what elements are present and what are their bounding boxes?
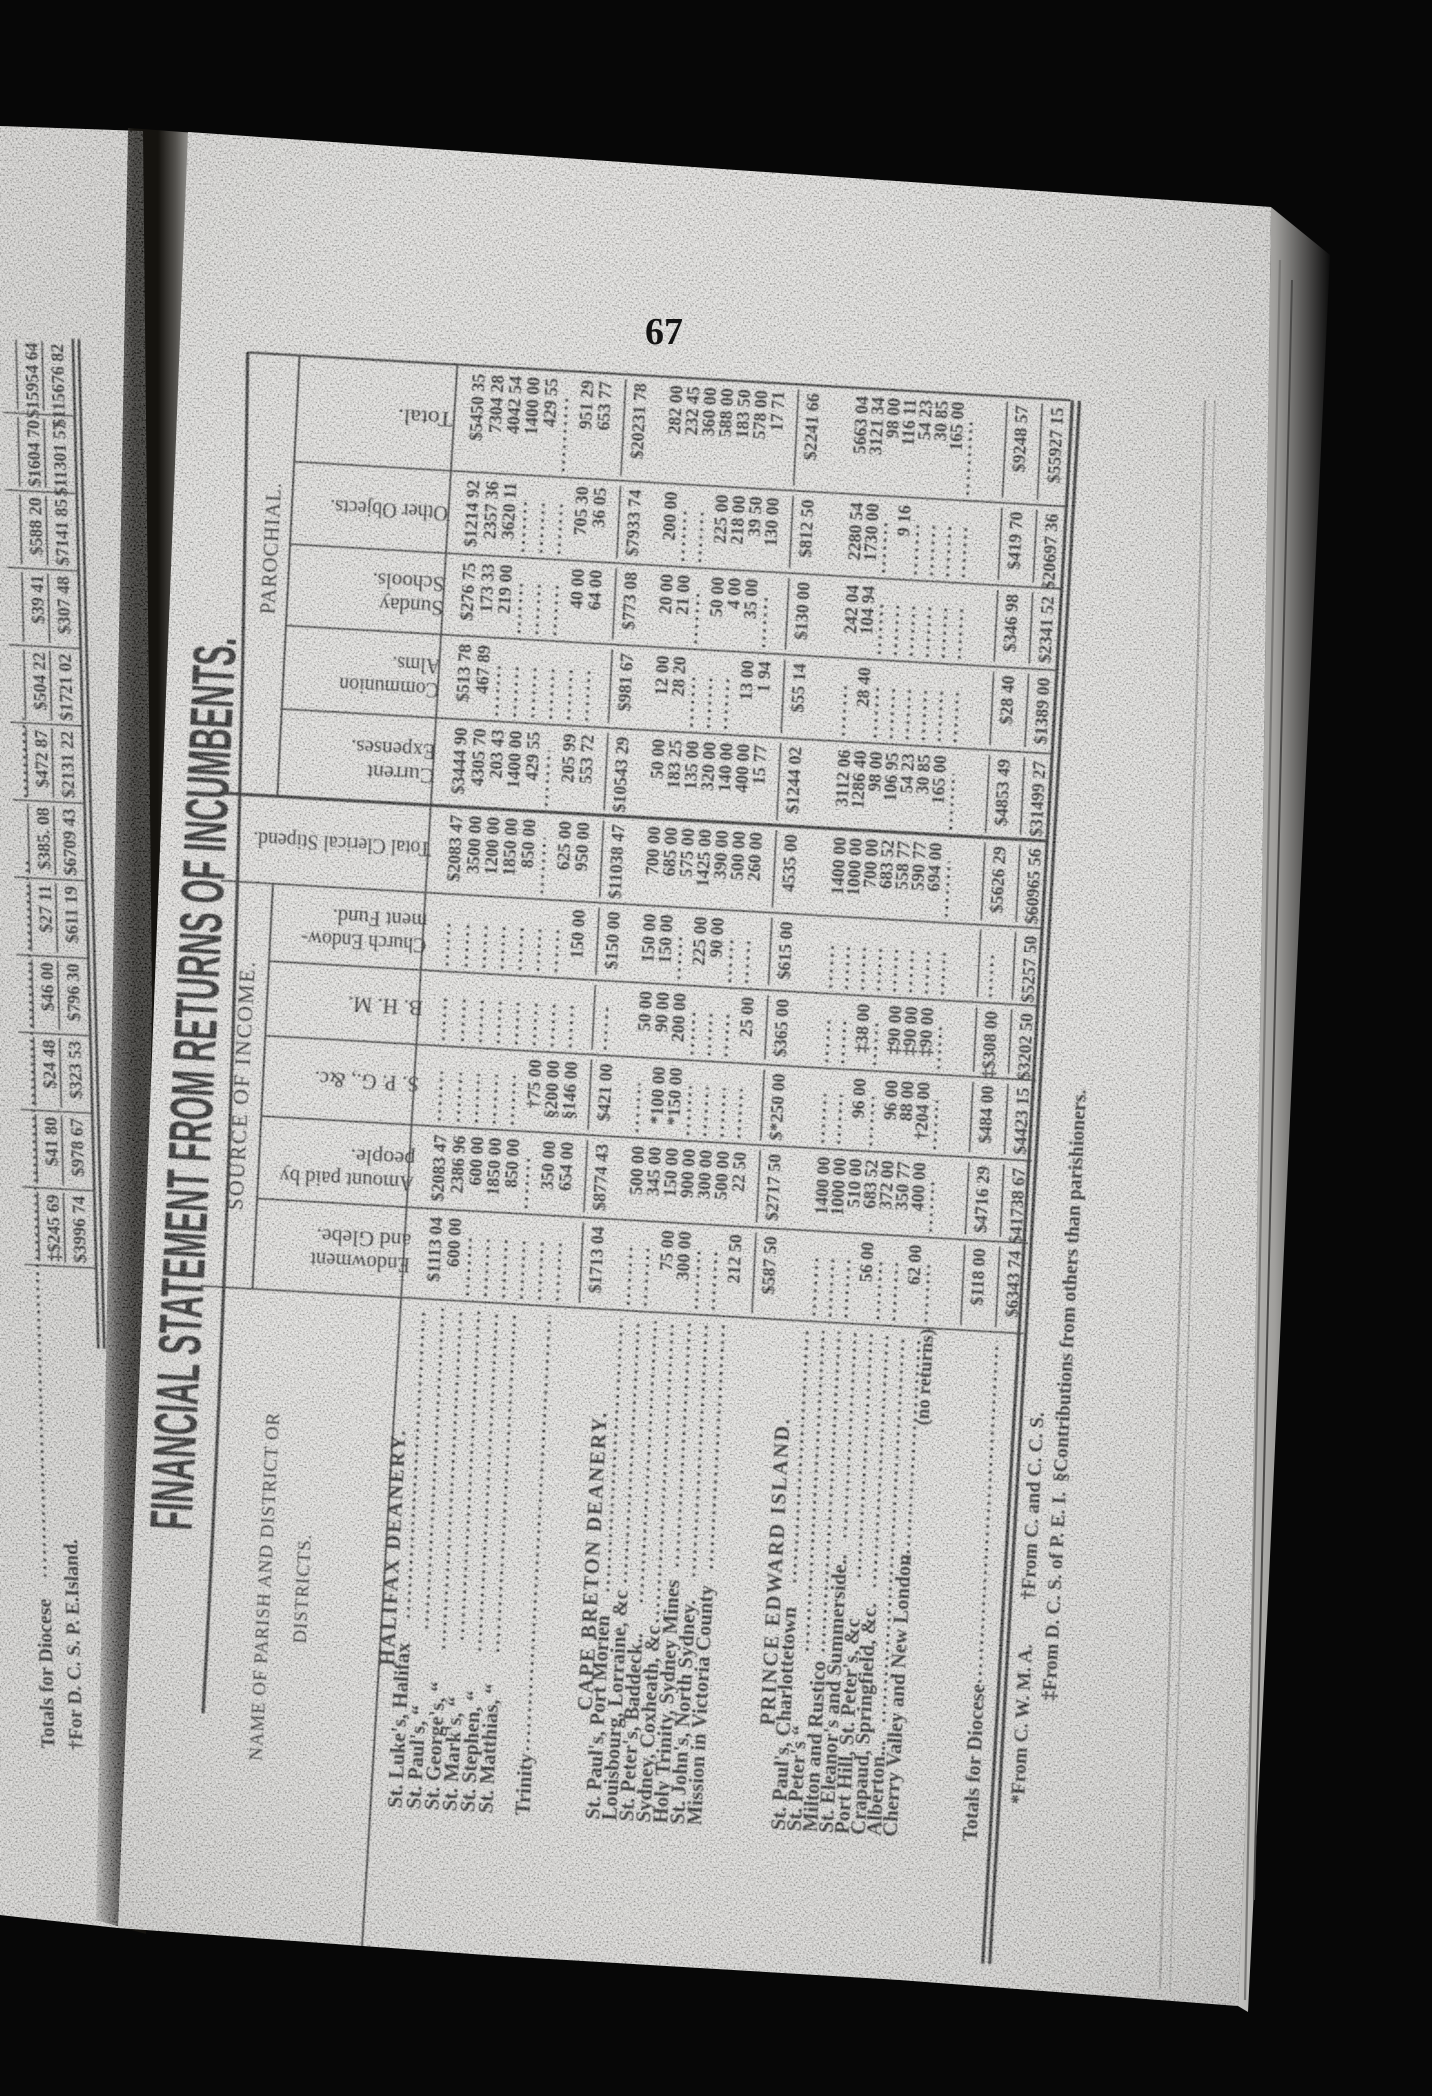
svg-text:67: 67 bbox=[645, 311, 683, 353]
